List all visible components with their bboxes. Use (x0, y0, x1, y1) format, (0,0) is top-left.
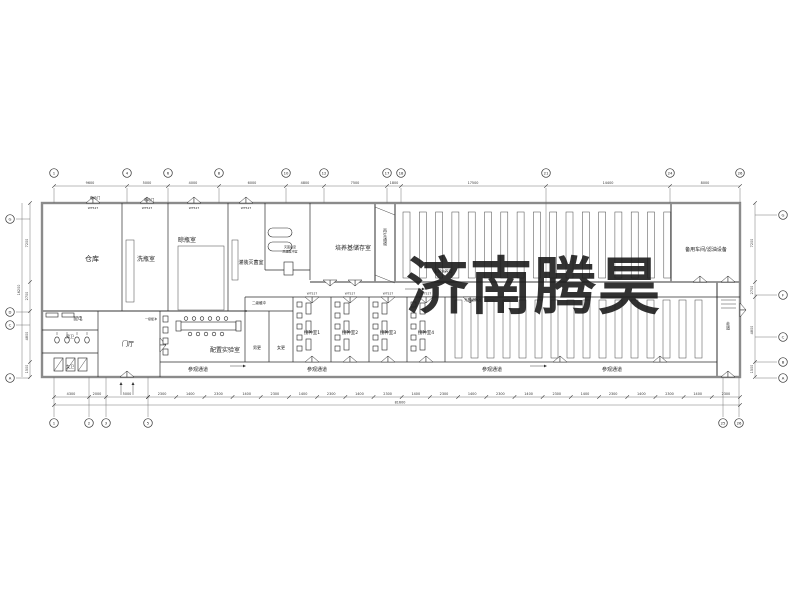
dimension-value: 1400 (242, 392, 251, 396)
dimension-value: 1400 (468, 392, 477, 396)
dimension-value: 1500 (25, 365, 29, 374)
label-visit-corridor-3: 参观通道 (482, 366, 502, 373)
clean-bench (344, 303, 349, 314)
clean-bench (297, 302, 302, 307)
clean-bench (382, 339, 387, 350)
clean-bench (382, 303, 387, 314)
label-bottle-dry: 晾瓶室 (178, 236, 196, 244)
dimension-value: 1400 (524, 392, 533, 396)
clean-bench (335, 346, 340, 351)
door-tag: WT527 (142, 206, 153, 210)
clean-bench (411, 346, 416, 351)
dimension-value: 4800 (25, 332, 29, 341)
dimension-value: 16200 (17, 285, 21, 296)
label-female-change: 女更 (277, 344, 285, 350)
filling-room-rack (232, 240, 238, 280)
clean-bench (420, 339, 425, 350)
door-tag: WT527 (345, 292, 356, 296)
rack (695, 300, 702, 358)
dimension-value: 2700 (750, 286, 754, 295)
door-tag: WT527 (383, 292, 394, 296)
grid-marker-label: G (782, 212, 785, 217)
grid-marker-label: 10 (284, 170, 289, 175)
label-inoc4: 接种室4 (418, 329, 434, 336)
label-regen-corridor: 再生通道 (383, 228, 387, 246)
clean-bench (306, 303, 311, 314)
dimension-value: 5000 (143, 181, 152, 185)
dimension-value: 2300 (383, 392, 392, 396)
dimension-value: 2300 (665, 392, 674, 396)
grid-marker-label: 18 (399, 170, 404, 175)
grid-marker-label: 17 (385, 170, 390, 175)
grid-marker-label: 12 (322, 170, 327, 175)
dimension-value: 1500 (750, 365, 754, 374)
clean-bench (373, 302, 378, 307)
label-electric-door-1: 电动门 (90, 195, 101, 200)
grid-marker-label: A (782, 375, 785, 380)
sterilizer-box (284, 262, 293, 275)
dimension-value: 2000 (93, 392, 102, 396)
label-bottle-wash: 洗瓶室 (137, 255, 155, 263)
autoclave-1 (268, 228, 292, 237)
dimension-value: 4300 (67, 392, 76, 396)
grid-marker-label: 26 (737, 420, 742, 425)
dimension-value: 1800 (390, 181, 399, 185)
dimension-value: 9600 (86, 181, 95, 185)
dimension-value: 14400 (603, 181, 614, 185)
grid-marker-label: G (9, 216, 12, 221)
dimension-value: 1400 (693, 392, 702, 396)
rack (663, 300, 670, 358)
label-warehouse: 仓库 (85, 254, 99, 263)
dimension-value: 1400 (411, 392, 420, 396)
grid-marker-label: 21 (544, 170, 549, 175)
cad-floor-plan-sheet: 14681012171821242612352526GDCAGFCBA 9600… (0, 0, 800, 600)
dimension-value: 1400 (355, 392, 364, 396)
clean-bench (335, 324, 340, 329)
label-filling-steril: 灌装灭菌室 (238, 259, 263, 266)
dimension-value: 8000 (701, 181, 710, 185)
label-inoc1: 接种室1 (304, 329, 320, 336)
label-visit-corridor-1: 参观通道 (188, 366, 208, 373)
clean-bench (411, 324, 416, 329)
label-inoc3: 接种室3 (380, 329, 396, 336)
label-power: 配电 (74, 315, 83, 322)
clean-bench (373, 313, 378, 318)
dimension-value: 1400 (299, 392, 308, 396)
dimension-value: 2300 (271, 392, 280, 396)
grid-marker-label: A (9, 375, 12, 380)
clean-bench (335, 302, 340, 307)
clean-bench (411, 335, 416, 340)
label-visit-corridor-4: 参观通道 (602, 366, 622, 373)
dimension-value: 1400 (637, 392, 646, 396)
grid-marker-label: B (782, 359, 785, 364)
dimension-value: 7200 (25, 239, 29, 248)
dimension-value: 2300 (496, 392, 505, 396)
clean-bench (344, 339, 349, 350)
power-panel-2 (62, 313, 74, 317)
grid-marker-label: 24 (668, 170, 673, 175)
rack (664, 212, 671, 278)
label-male-change: 男更 (253, 345, 261, 350)
dimension-value: 7200 (750, 239, 754, 248)
clean-bench (373, 335, 378, 340)
dimension-value: 1400 (581, 392, 590, 396)
dimension-value: 4800 (750, 326, 754, 335)
label-right-corridor: 走道 (726, 320, 730, 330)
dimension-value: 2300 (158, 392, 167, 396)
dimension-value: 81600 (395, 401, 406, 405)
label-lobby: 门厅 (122, 340, 134, 348)
dimension-value: 4000 (189, 181, 198, 185)
grid-marker-label: 26 (738, 170, 743, 175)
rack (679, 300, 686, 358)
label-spare-workshop: 备用车间/滤油设备 (685, 246, 727, 253)
door-tag: WT527 (88, 206, 99, 210)
clean-bench (373, 346, 378, 351)
clean-bench (306, 339, 311, 350)
dimension-value: 6000 (248, 181, 257, 185)
clean-bench (335, 313, 340, 318)
clean-bench (373, 324, 378, 329)
dimension-value: 4800 (301, 181, 310, 185)
label-buffer2: 二级缓冲 (252, 300, 266, 305)
dimension-value: 2300 (722, 392, 731, 396)
grid-marker-label: F (782, 292, 784, 297)
dimension-value: 2300 (552, 392, 561, 396)
door-tag: WT527 (307, 292, 318, 296)
dimension-value: 17500 (468, 181, 479, 185)
dimension-value: 2300 (327, 392, 336, 396)
label-buffer1: 一级缓冲 (145, 316, 157, 321)
grid-marker-label: 25 (721, 420, 726, 425)
clean-bench (297, 324, 302, 329)
grid-markers: 14681012171821242612352526GDCAGFCBA (6, 169, 788, 428)
dimension-value: 2300 (440, 392, 449, 396)
power-panel-1 (46, 313, 58, 317)
clean-bench (297, 335, 302, 340)
label-post-steril-2: 高温缓冲室 (282, 249, 297, 254)
label-female-wc: 女卫 (66, 363, 74, 369)
clean-bench (335, 335, 340, 340)
label-medium-storage: 培养基储存室 (335, 244, 371, 252)
label-visit-corridor-2: 参观通道 (307, 366, 327, 373)
clean-bench (297, 313, 302, 318)
label-male-wc: 男卫 (66, 334, 74, 339)
label-prep-lab: 配置实验室 (210, 346, 240, 354)
label-post-steril-1: 灭菌后室 (284, 244, 296, 249)
dimension-value: 7500 (351, 181, 360, 185)
dimension-value: 1400 (186, 392, 195, 396)
right-corridor-stairs (721, 300, 736, 308)
dimension-value: 5000 (123, 392, 132, 396)
grid-marker-label: C (782, 334, 785, 339)
grid-marker-label: C (9, 322, 12, 327)
drying-rack-area (178, 246, 224, 310)
dimension-value: 2300 (609, 392, 618, 396)
clean-bench (297, 346, 302, 351)
dimension-value: 2300 (214, 392, 223, 396)
door-tag: WT527 (241, 206, 252, 210)
floor-plan-drawing: 14681012171821242612352526GDCAGFCBA 9600… (0, 0, 800, 600)
dimension-value: 2700 (25, 292, 29, 301)
label-inoc2: 接种室2 (342, 329, 358, 336)
door-tag: WT527 (189, 206, 200, 210)
watermark-text: 济南腾昊 (406, 250, 662, 323)
wash-room-rack (126, 240, 134, 302)
grid-marker-label: D (9, 309, 12, 314)
label-electric-door-2: 电动门 (144, 197, 155, 202)
